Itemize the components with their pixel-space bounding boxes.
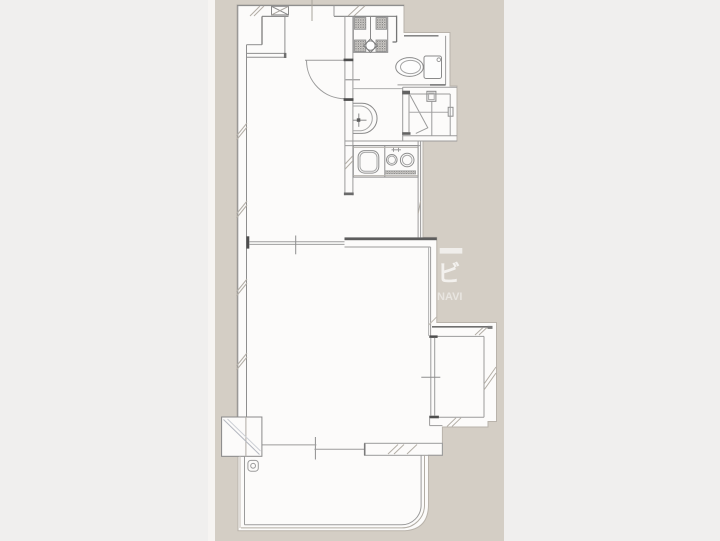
- svg-text:NAVI: NAVI: [437, 291, 462, 303]
- svg-text:ビ: ビ: [438, 260, 461, 286]
